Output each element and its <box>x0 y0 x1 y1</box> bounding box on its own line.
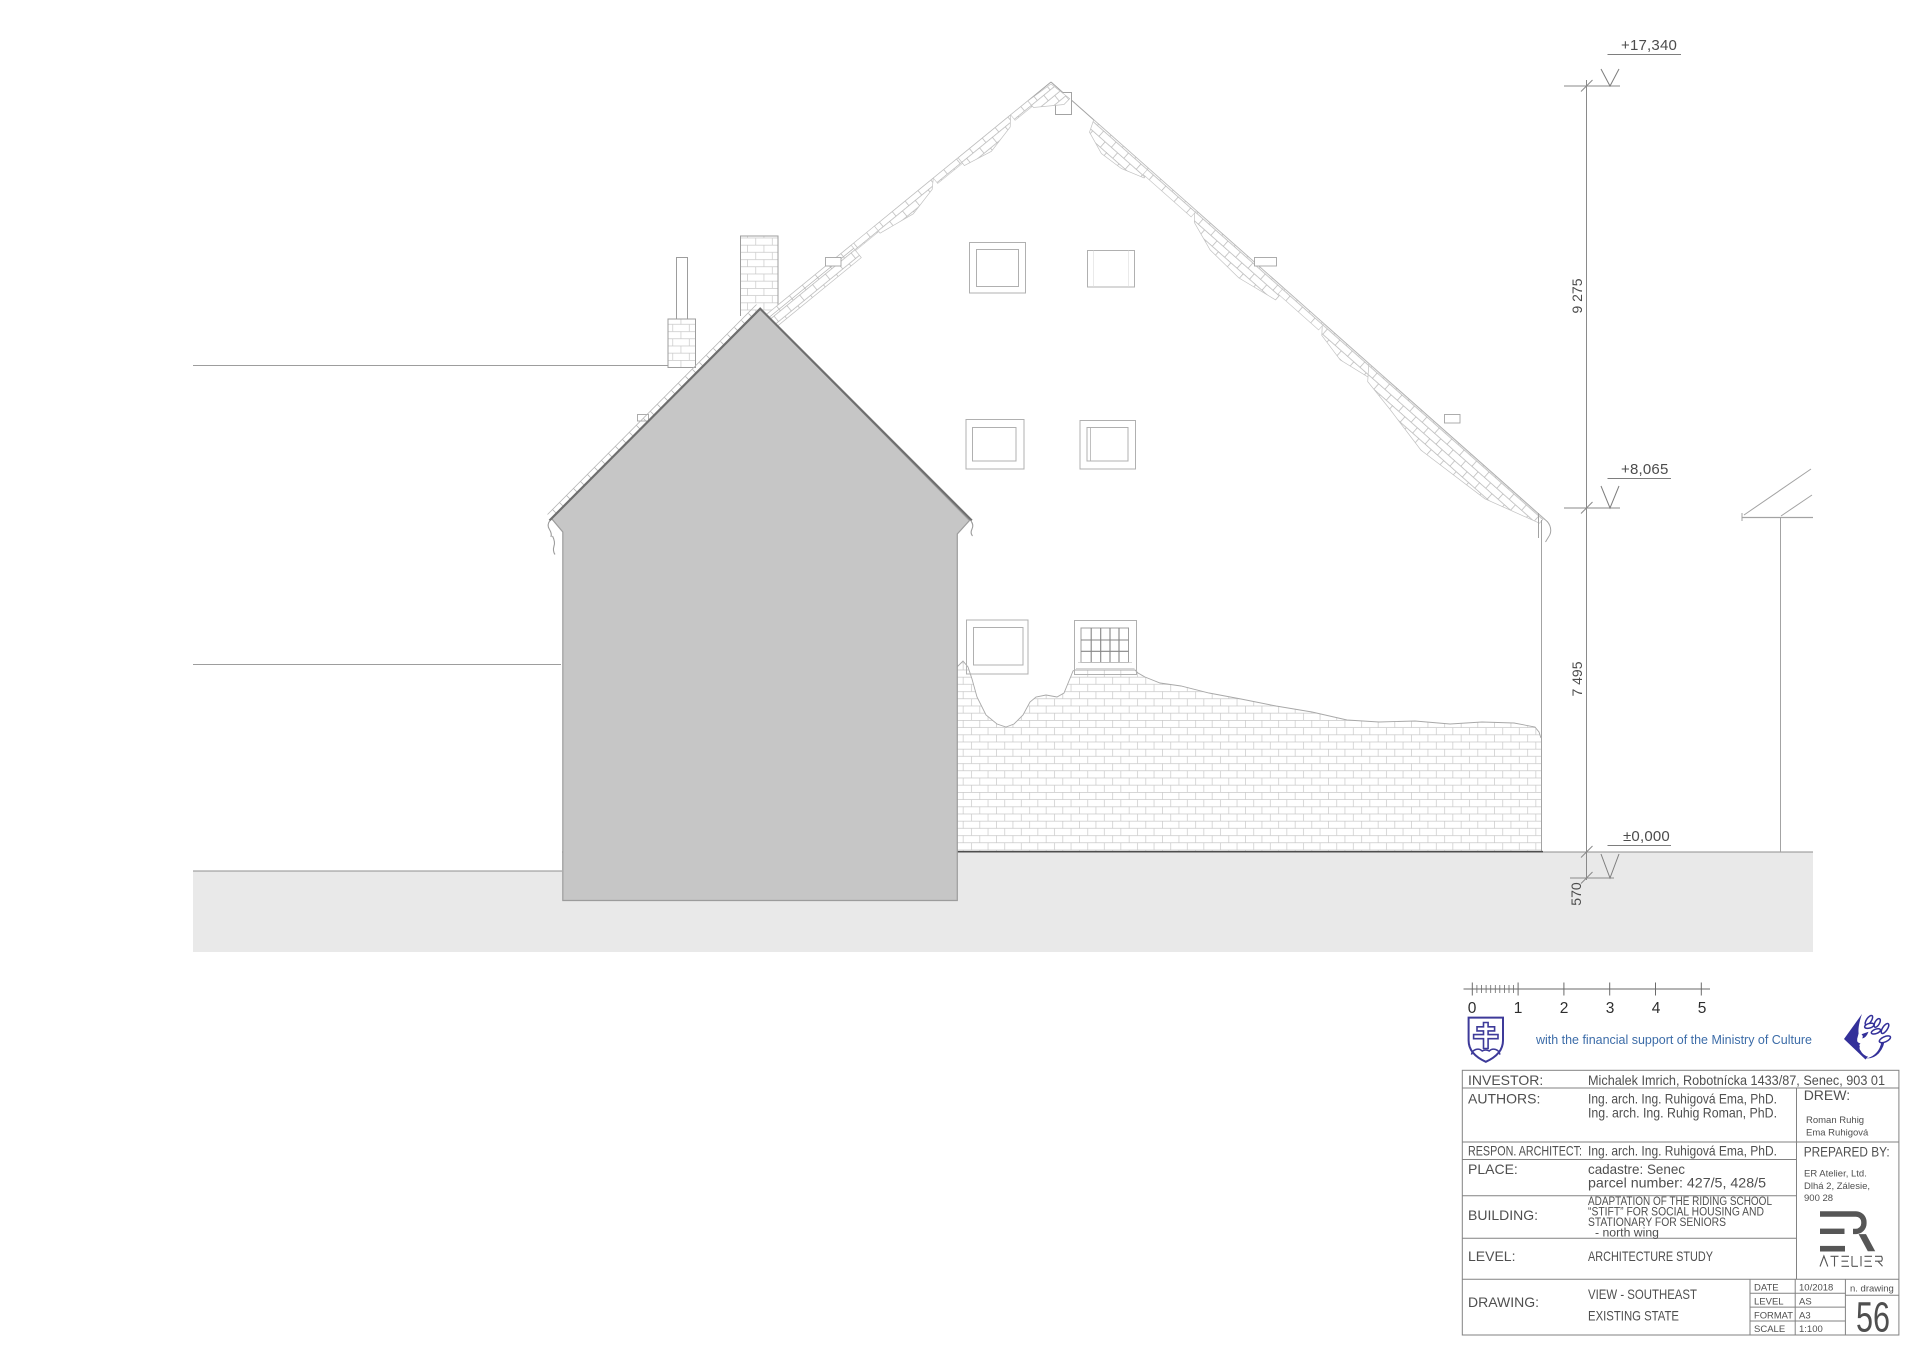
svg-text:2: 2 <box>1560 1000 1569 1017</box>
svg-text:0: 0 <box>1468 1000 1477 1017</box>
svg-text:Dlhá 2, Zálesie,: Dlhá 2, Zálesie, <box>1804 1181 1870 1192</box>
svg-text:3: 3 <box>1606 1000 1615 1017</box>
svg-text:ARCHITECTURE STUDY: ARCHITECTURE STUDY <box>1588 1248 1714 1264</box>
svg-text:56: 56 <box>1856 1294 1890 1342</box>
svg-text:FORMAT: FORMAT <box>1754 1310 1793 1321</box>
svg-text:LEVEL: LEVEL <box>1754 1296 1784 1307</box>
svg-text:BUILDING:: BUILDING: <box>1468 1207 1538 1223</box>
svg-text:+8,065: +8,065 <box>1621 461 1669 478</box>
svg-text:4: 4 <box>1652 1000 1661 1017</box>
svg-text:900 28: 900 28 <box>1804 1193 1833 1204</box>
svg-text:Ing. arch. Ing. Ruhigová Ema,: Ing. arch. Ing. Ruhigová Ema, PhD. <box>1588 1143 1777 1159</box>
svg-text:570: 570 <box>1568 882 1584 906</box>
svg-text:with the financial support of: with the financial support of the Minist… <box>1535 1032 1812 1047</box>
svg-text:Ing. arch. Ing. Ruhig Roman, P: Ing. arch. Ing. Ruhig Roman, PhD. <box>1588 1105 1777 1121</box>
svg-text:DRAWING:: DRAWING: <box>1468 1294 1539 1310</box>
svg-text:DREW:: DREW: <box>1804 1087 1850 1103</box>
svg-text:10/2018: 10/2018 <box>1799 1283 1833 1294</box>
svg-text:1:100: 1:100 <box>1799 1324 1823 1335</box>
svg-text:Ema Ruhigová: Ema Ruhigová <box>1806 1128 1869 1139</box>
svg-text:EXISTING STATE: EXISTING STATE <box>1588 1308 1679 1324</box>
svg-text:PREPARED BY:: PREPARED BY: <box>1804 1144 1890 1160</box>
svg-text:±0,000: ±0,000 <box>1623 828 1670 845</box>
svg-text:RESPON. ARCHITECT:: RESPON. ARCHITECT: <box>1468 1143 1582 1159</box>
svg-text:5: 5 <box>1698 1000 1707 1017</box>
svg-text:Roman Ruhig: Roman Ruhig <box>1806 1115 1864 1126</box>
svg-text:DATE: DATE <box>1754 1283 1779 1294</box>
svg-text:A3: A3 <box>1799 1310 1811 1321</box>
svg-text:SCALE: SCALE <box>1754 1324 1785 1335</box>
svg-text:PLACE:: PLACE: <box>1468 1161 1518 1177</box>
svg-text:LEVEL:: LEVEL: <box>1468 1248 1515 1264</box>
svg-text:AS: AS <box>1799 1296 1812 1307</box>
svg-text:7 495: 7 495 <box>1569 661 1585 696</box>
svg-text:1: 1 <box>1514 1000 1523 1017</box>
svg-text:AUTHORS:: AUTHORS: <box>1468 1091 1540 1107</box>
svg-text:parcel number: 427/5, 428/5: parcel number: 427/5, 428/5 <box>1588 1175 1766 1191</box>
svg-text:+17,340: +17,340 <box>1621 37 1677 54</box>
svg-text:INVESTOR:: INVESTOR: <box>1468 1072 1543 1088</box>
svg-text:Michalek Imrich, Robotnícka 14: Michalek Imrich, Robotnícka 1433/87, Sen… <box>1588 1072 1885 1088</box>
svg-text:- north wing: - north wing <box>1595 1228 1659 1240</box>
svg-text:9 275: 9 275 <box>1569 278 1585 313</box>
svg-text:VIEW - SOUTHEAST: VIEW - SOUTHEAST <box>1588 1286 1697 1302</box>
svg-text:ER Atelier, Ltd.: ER Atelier, Ltd. <box>1804 1169 1867 1180</box>
